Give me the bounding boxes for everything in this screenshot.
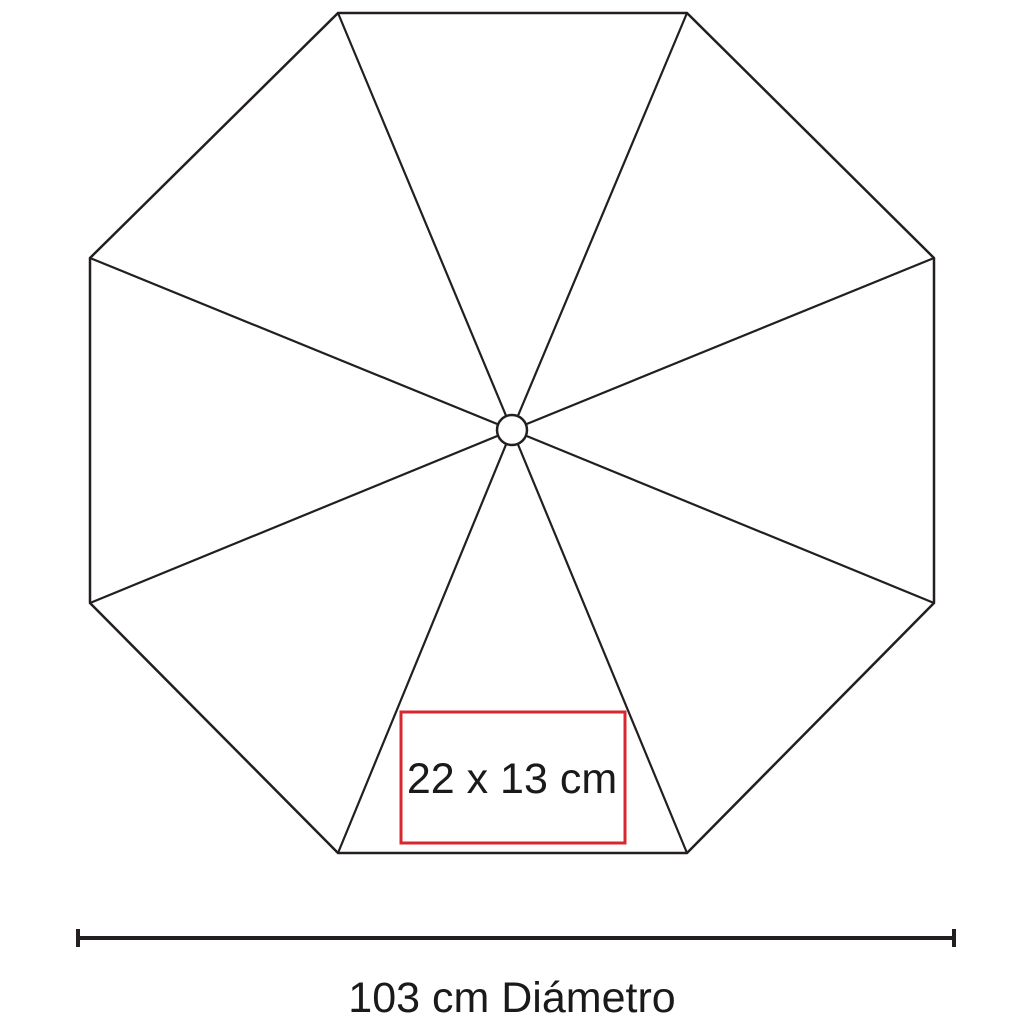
rib-spoke-right-upper bbox=[512, 258, 934, 430]
rib-spoke-top-left bbox=[338, 13, 512, 430]
umbrella-top-view-canvas: 22 x 13 cm 103 cm Diámetro bbox=[0, 0, 1024, 1024]
center-hub bbox=[497, 415, 527, 445]
rib-spoke-left-upper bbox=[90, 258, 512, 430]
rib-spoke-left-lower bbox=[90, 430, 512, 603]
rib-spoke-top-right bbox=[512, 13, 687, 430]
umbrella-spec-diagram: 22 x 13 cm 103 cm Diámetro bbox=[0, 0, 1024, 1024]
imprint-area-label: 22 x 13 cm bbox=[407, 755, 617, 803]
diameter-dimension-line bbox=[77, 929, 955, 947]
rib-spoke-right-lower bbox=[512, 430, 934, 603]
diameter-label: 103 cm Diámetro bbox=[348, 974, 675, 1022]
